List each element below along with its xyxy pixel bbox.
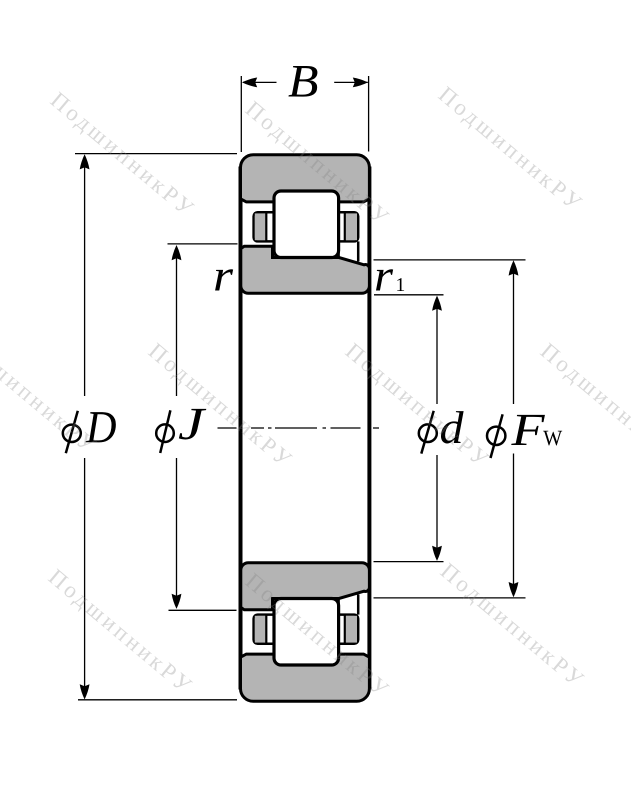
svg-text:ПодшипникРУ: ПодшипникРУ bbox=[536, 338, 631, 473]
svg-text:ПодшипникРУ: ПодшипникРУ bbox=[341, 338, 496, 473]
svg-text:ПодшипникРУ: ПодшипникРУ bbox=[434, 82, 589, 217]
svg-text:ПодшипникРУ: ПодшипникРУ bbox=[46, 87, 201, 222]
svg-text:ПодшипникРУ: ПодшипникРУ bbox=[44, 564, 199, 699]
svg-text:ПодшипникРУ: ПодшипникРУ bbox=[0, 324, 102, 459]
svg-text:ПодшипникРУ: ПодшипникРУ bbox=[144, 338, 299, 473]
